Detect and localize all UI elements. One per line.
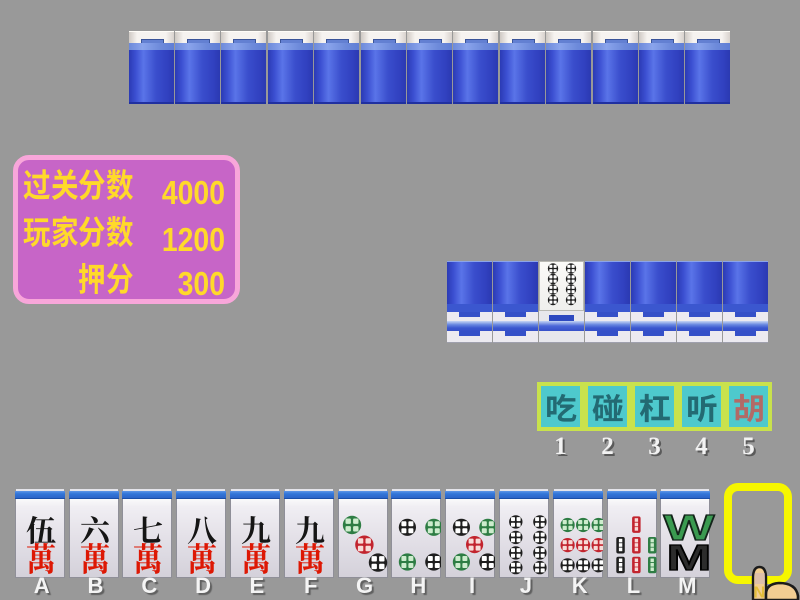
- svg-text:N: N: [754, 585, 766, 600]
